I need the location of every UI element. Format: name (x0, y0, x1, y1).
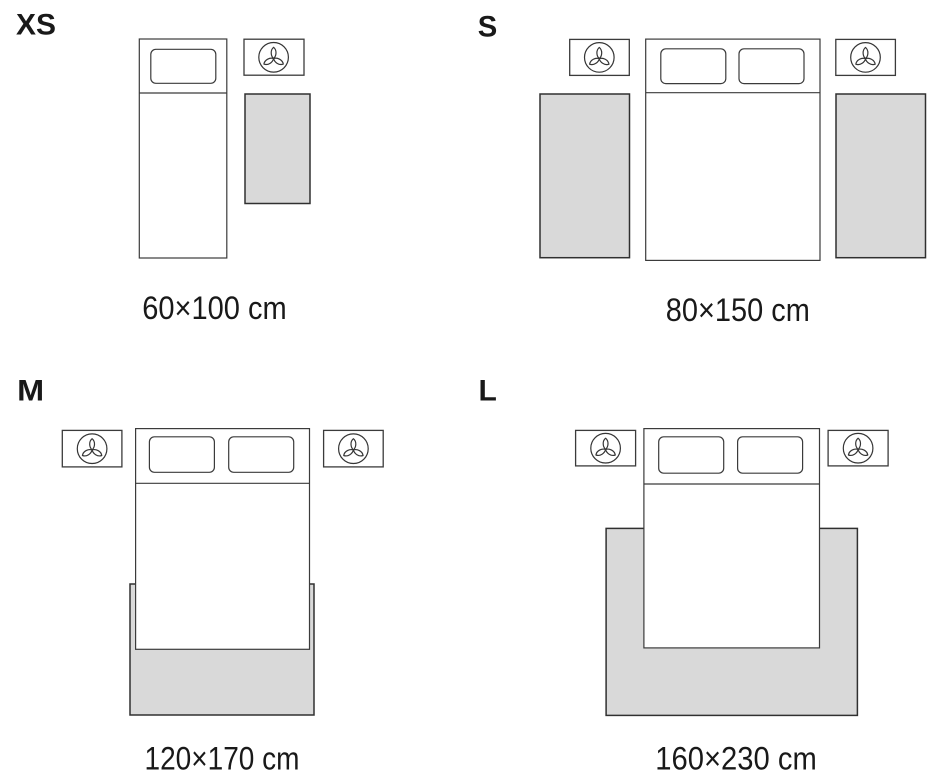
svg-text:60×100 cm: 60×100 cm (142, 290, 287, 326)
svg-text:L: L (479, 375, 497, 408)
svg-text:M: M (17, 375, 44, 408)
svg-text:160×230 cm: 160×230 cm (655, 740, 817, 776)
svg-text:S: S (478, 10, 498, 43)
svg-text:80×150 cm: 80×150 cm (666, 292, 810, 328)
svg-text:XS: XS (16, 9, 56, 42)
svg-text:120×170 cm: 120×170 cm (145, 740, 300, 776)
